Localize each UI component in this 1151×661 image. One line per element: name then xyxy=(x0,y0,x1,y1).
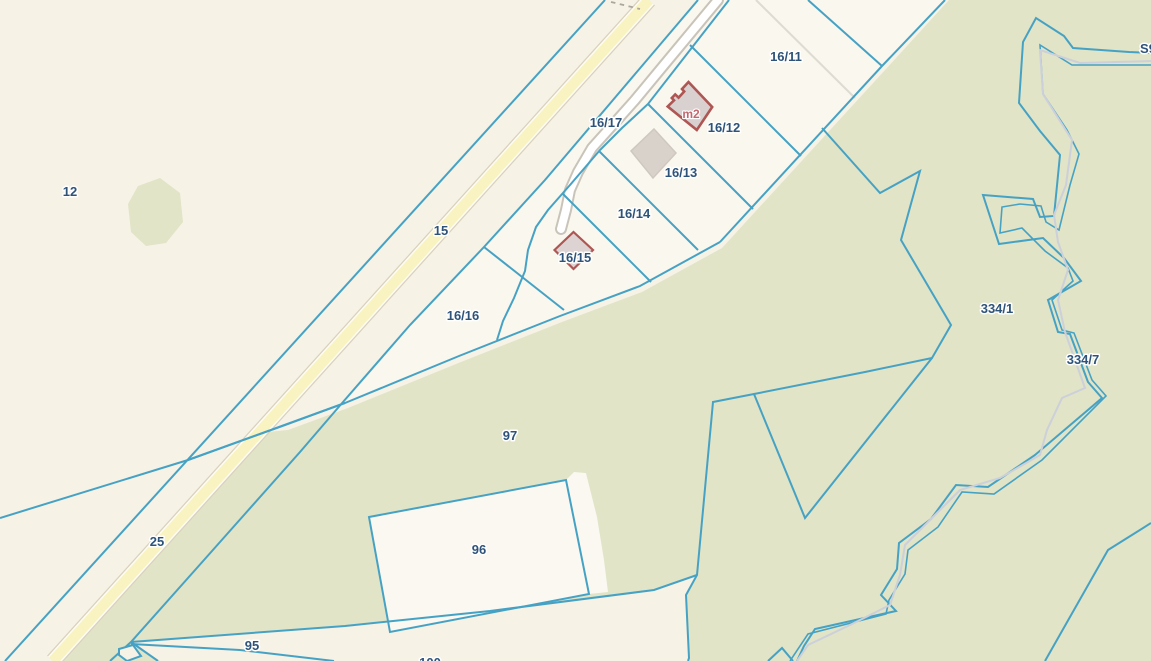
svg-text:15: 15 xyxy=(434,223,448,238)
svg-text:16/11: 16/11 xyxy=(770,49,802,64)
svg-text:16/16: 16/16 xyxy=(447,308,480,323)
svg-text:334/1: 334/1 xyxy=(981,301,1014,316)
svg-text:334/7: 334/7 xyxy=(1067,352,1100,367)
svg-text:25: 25 xyxy=(150,534,164,549)
svg-text:96: 96 xyxy=(472,542,486,557)
svg-text:95: 95 xyxy=(245,638,259,653)
svg-text:12: 12 xyxy=(63,184,77,199)
svg-text:16/14: 16/14 xyxy=(618,206,651,221)
svg-text:S9: S9 xyxy=(1140,41,1151,56)
svg-text:16/12: 16/12 xyxy=(708,120,741,135)
svg-text:16/13: 16/13 xyxy=(665,165,698,180)
svg-text:100: 100 xyxy=(419,655,441,661)
svg-text:16/17: 16/17 xyxy=(590,115,623,130)
svg-text:m2: m2 xyxy=(682,107,700,121)
svg-text:97: 97 xyxy=(503,428,517,443)
svg-text:16/15: 16/15 xyxy=(559,250,592,265)
